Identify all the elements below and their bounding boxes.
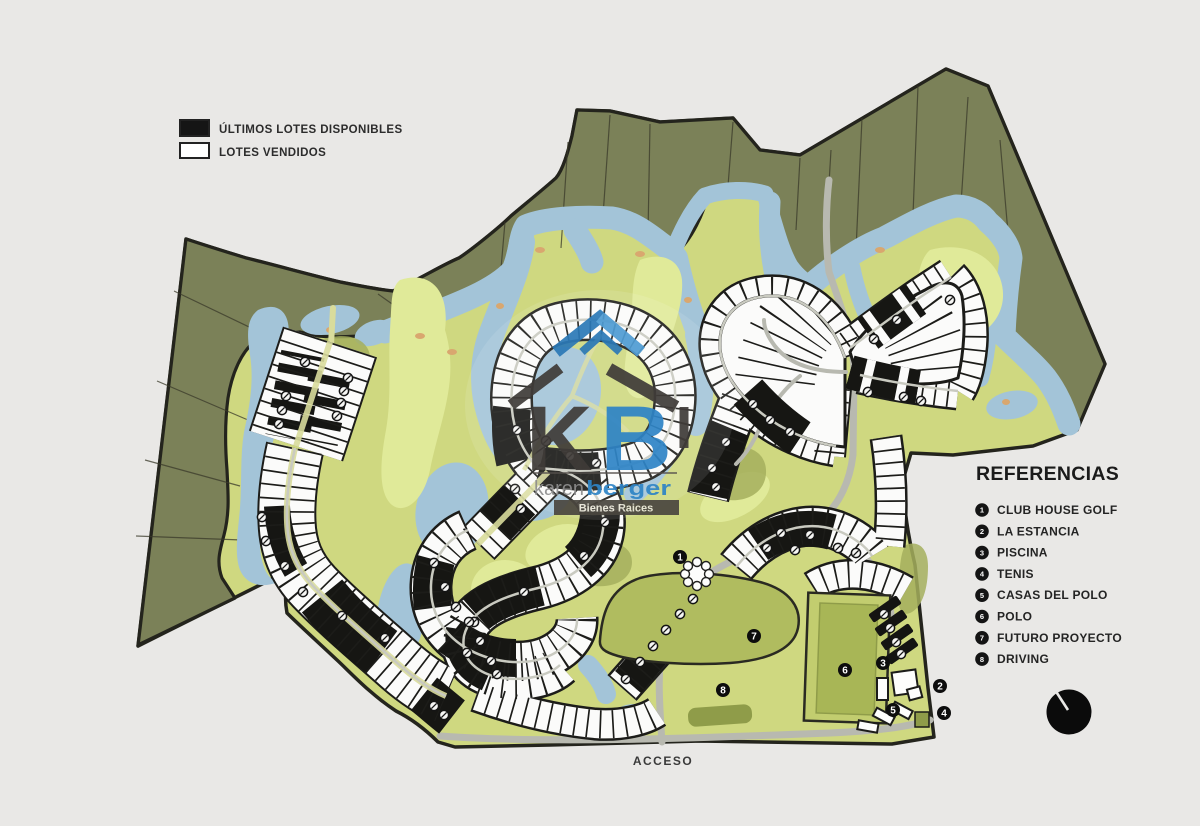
svg-text:POLO: POLO [997,610,1032,624]
svg-text:5: 5 [890,706,896,717]
svg-text:3: 3 [880,659,886,670]
svg-text:LA ESTANCIA: LA ESTANCIA [997,524,1080,538]
svg-text:5: 5 [980,591,984,600]
svg-text:7: 7 [751,632,757,643]
svg-text:8: 8 [980,655,984,664]
svg-text:LOTES VENDIDOS: LOTES VENDIDOS [219,147,326,159]
svg-text:6: 6 [980,612,984,621]
svg-text:6: 6 [842,666,848,677]
svg-text:3: 3 [980,548,984,557]
svg-text:4: 4 [941,709,947,720]
svg-text:8: 8 [720,686,726,697]
svg-text:7: 7 [980,634,984,643]
svg-text:CLUB HOUSE GOLF: CLUB HOUSE GOLF [997,503,1118,517]
svg-text:TENIS: TENIS [997,567,1034,581]
svg-text:ÚLTIMOS LOTES DISPONIBLES: ÚLTIMOS LOTES DISPONIBLES [219,123,403,136]
svg-text:1: 1 [677,553,683,564]
svg-text:Bienes Raices: Bienes Raices [579,503,654,515]
svg-text:CASAS DEL POLO: CASAS DEL POLO [997,588,1108,602]
svg-text:DRIVING: DRIVING [997,652,1049,666]
svg-text:PISCINA: PISCINA [997,546,1048,560]
svg-text:ACCESO: ACCESO [633,754,693,768]
svg-text:2: 2 [937,682,943,693]
svg-text:1: 1 [980,506,984,515]
svg-text:B: B [600,388,672,490]
svg-text:karen: karen [534,478,584,500]
svg-text:berger: berger [586,478,671,500]
svg-text:REFERENCIAS: REFERENCIAS [976,463,1119,485]
svg-text:FUTURO PROYECTO: FUTURO PROYECTO [997,631,1122,645]
svg-text:2: 2 [980,527,984,536]
svg-text:K: K [526,388,592,490]
